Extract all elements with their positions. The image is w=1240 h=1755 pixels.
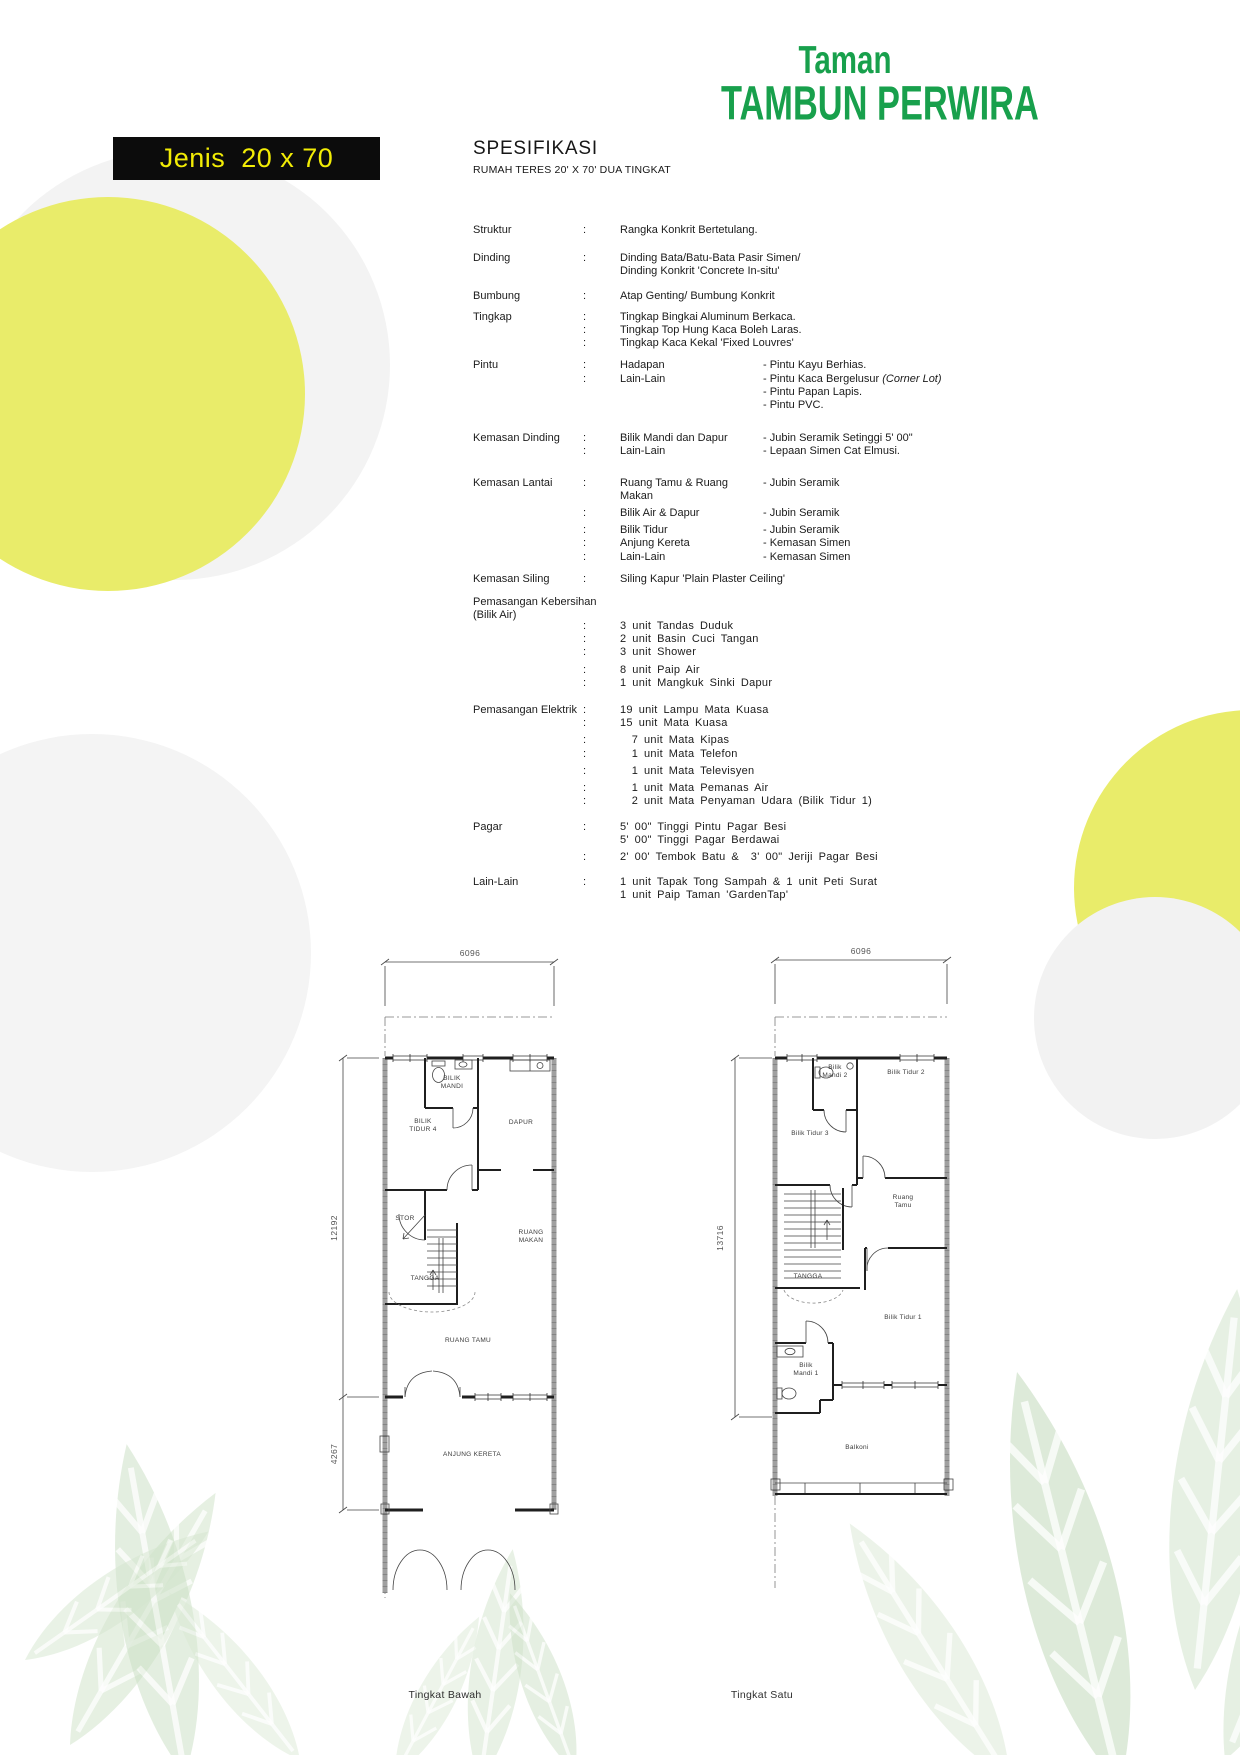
dim-width: 6096 [460,948,481,958]
spec-section-lines: :Dinding Bata/Batu-Bata Pasir Simen/ Din… [583,252,1113,278]
spec-colon: : [583,524,620,537]
spec-line: - Pintu Papan Lapis. [583,386,1113,399]
spec-section: Pintu :Hadapan- Pintu Kayu Berhias. :Lai… [473,359,1113,412]
spec-section-label: Pemasangan Kebersihan (Bilik Air) [473,596,583,690]
spec-value: 1 unit Mata Televisyen [620,765,754,778]
spec-colon: : [583,537,620,550]
spec-colon: : [583,551,620,564]
spec-value: 2 unit Basin Cuci Tangan [620,633,759,646]
spec-colon: : [583,677,620,690]
spec-colon: : [583,646,620,659]
spec-line: :Anjung Kereta- Kemasan Simen [583,537,1113,550]
spec-line: :1 unit Tapak Tong Sampah & 1 unit Peti … [583,876,1113,889]
room-ruang-makan: RUANG MAKAN [513,1229,549,1244]
brochure-page: Jenis 20 x 70 Taman TAMBUN PERWIRA SPESI… [0,0,1240,1755]
leaf-decoration [11,1284,1240,1755]
spec-colon: : [583,633,620,646]
spec-section: Kemasan Siling :Siling Kapur 'Plain Plas… [473,573,1113,586]
spec-section: Pemasangan Kebersihan (Bilik Air) :3 uni… [473,596,1113,690]
spec-colon: : [583,748,620,761]
spec-value: 8 unit Paip Air [620,664,700,677]
spec-label-line2: (Bilik Air) [473,609,583,622]
logo-line1: Taman [718,38,972,81]
spec-section: Kemasan Dinding :Bilik Mandi dan Dapur- … [473,432,1113,458]
room-ruang-tamu: Ruang Tamu [888,1194,918,1209]
spec-label-line1: Pemasangan Elektrik [473,704,583,717]
room-bilik-mandi: BILIK MANDI [437,1075,467,1090]
spec-line: :Rangka Konkrit Bertetulang. [583,224,1113,237]
spec-colon: : [583,765,620,778]
house-type-label: Jenis 20 x 70 [160,143,334,174]
room-bilik-mandi-1: Bilik Mandi 1 [793,1362,819,1377]
spec-colon [583,834,620,847]
spec-value: Lain-Lain [620,551,763,564]
spec-line: : 1 unit Mata Pemanas Air [583,782,1113,795]
room-balkoni: Balkoni [837,1444,877,1452]
spec-line: :Bilik Air & Dapur- Jubin Seramik [583,507,1113,520]
floor-plan-first: 6096 13716 [660,938,980,1720]
spec-value: 1 unit Mata Pemanas Air [620,782,768,795]
spec-section-label: Dinding [473,252,583,278]
spec-value-detail: - Pintu Papan Lapis. [763,386,862,399]
spec-value: 7 unit Mata Kipas [620,734,729,747]
spec-colon: : [583,507,620,520]
spec-colon: : [583,821,620,834]
spec-value: Bilik Mandi dan Dapur [620,432,763,445]
spec-section-label: Kemasan Dinding [473,432,583,458]
spec-value: Anjung Kereta [620,537,763,550]
spec-value: 3 unit Shower [620,646,696,659]
spec-line: Dinding Konkrit 'Concrete In-situ' [583,265,1113,278]
spec-value-detail: - Kemasan Simen [763,537,850,550]
dim-width: 6096 [851,946,872,956]
spec-value: 15 unit Mata Kuasa [620,717,728,730]
spec-section: Pagar :5' 00" Tinggi Pintu Pagar Besi 5'… [473,821,1113,865]
spec-section-label: Kemasan Lantai [473,477,583,564]
spec-value: 1 unit Tapak Tong Sampah & 1 unit Peti S… [620,876,877,889]
spec-colon: : [583,704,620,717]
spec-section-lines: :19 unit Lampu Mata Kuasa :15 unit Mata … [583,704,1113,808]
spec-section-lines: :Tingkap Bingkai Aluminum Berkaca. :Ting… [583,311,1113,351]
dim-depth-porch: 4267 [329,1444,339,1465]
spec-section-lines: :Atap Genting/ Bumbung Konkrit [583,290,1113,303]
spec-colon: : [583,337,620,350]
house-type-badge: Jenis 20 x 70 [113,137,380,180]
dim-depth-main: 13716 [715,1225,725,1251]
spec-line: :Bilik Mandi dan Dapur- Jubin Seramik Se… [583,432,1113,445]
spec-value: 5' 00" Tinggi Pagar Berdawai [620,834,780,847]
spec-value: 2 unit Mata Penyaman Udara (Bilik Tidur … [620,795,872,808]
spec-colon: : [583,290,620,303]
spec-colon: : [583,324,620,337]
spec-line: :Ruang Tamu & Ruang Makan- Jubin Seramik [583,477,1113,503]
spec-value-detail: - Jubin Seramik Setinggi 5' 00" [763,432,913,445]
spec-colon [583,386,620,399]
spec-value: 1 unit Paip Taman 'GardenTap' [620,889,788,902]
spec-line: : 1 unit Mata Telefon [583,748,1113,761]
spec-value: 3 unit Tandas Duduk [620,620,733,633]
spec-section-label: Bumbung [473,290,583,303]
spec-colon: : [583,851,620,864]
spec-value: 1 unit Mangkuk Sinki Dapur [620,677,772,690]
spec-line: 1 unit Paip Taman 'GardenTap' [583,889,1113,902]
spec-colon [583,399,620,412]
spec-line: :2 unit Basin Cuci Tangan [583,633,1113,646]
spec-label-line1: Pemasangan Kebersihan [473,596,583,609]
room-ruang-tamu: RUANG TAMU [433,1337,503,1345]
spec-colon: : [583,664,620,677]
spec-colon: : [583,359,620,372]
spec-line: :1 unit Mangkuk Sinki Dapur [583,677,1113,690]
spec-section-label: Pagar [473,821,583,865]
spec-line: :Siling Kapur 'Plain Plaster Ceiling' [583,573,1113,586]
spec-label-line1: Kemasan Lantai [473,477,583,490]
spec-line: :Atap Genting/ Bumbung Konkrit [583,290,1113,303]
spec-label-line1: Pintu [473,359,583,372]
spec-line: : 7 unit Mata Kipas [583,734,1113,747]
spec-value [620,386,763,399]
spec-value: 19 unit Lampu Mata Kuasa [620,704,769,717]
spec-value-detail: - Pintu Kaca Bergelusur (Corner Lot) [763,373,942,386]
spec-label-line1: Struktur [473,224,583,237]
spec-subtitle: RUMAH TERES 20' X 70' DUA TINGKAT [473,164,671,176]
room-bilik-tidur-3: Bilik Tidur 3 [790,1130,830,1138]
spec-label-line1: Pagar [473,821,583,834]
spec-value-detail: - Jubin Seramik [763,507,839,520]
spec-value-detail: - Lepaan Simen Cat Elmusi. [763,445,900,458]
room-bilik-mandi-2: Bilik Mandi 2 [821,1064,849,1079]
room-tangga: TANGGA [788,1273,828,1281]
spec-colon: : [583,252,620,265]
spec-section: Dinding :Dinding Bata/Batu-Bata Pasir Si… [473,252,1113,278]
spec-title: SPESIFIKASI [473,138,671,160]
spec-label-line1: Kemasan Siling [473,573,583,586]
spec-line: 5' 00" Tinggi Pagar Berdawai [583,834,1113,847]
spec-colon: : [583,620,620,633]
spec-colon: : [583,224,620,237]
spec-section-lines: :1 unit Tapak Tong Sampah & 1 unit Peti … [583,876,1113,902]
spec-section-label: Tingkap [473,311,583,351]
room-dapur: DAPUR [501,1119,541,1127]
floor-plan-ground: 6096 12192 4267 [325,938,575,1720]
floor-plan-first-drawing: 6096 13716 [660,938,980,1720]
dim-depth-main: 12192 [329,1215,339,1241]
spec-value [620,399,763,412]
spec-line: :15 unit Mata Kuasa [583,717,1113,730]
spec-label-line1: Tingkap [473,311,583,324]
spec-colon: : [583,573,620,586]
spec-colon: : [583,373,620,386]
spec-colon: : [583,782,620,795]
spec-value: Dinding Bata/Batu-Bata Pasir Simen/ [620,252,800,265]
spec-section: Bumbung :Atap Genting/ Bumbung Konkrit [473,290,1113,303]
spec-value: Tingkap Top Hung Kaca Boleh Laras. [620,324,802,337]
logo-line2: TAMBUN PERWIRA [721,79,969,128]
spec-line: :Tingkap Top Hung Kaca Boleh Laras. [583,324,1113,337]
plan-caption-first: Tingkat Satu [731,1689,793,1701]
spec-line: :Bilik Tidur- Jubin Seramik [583,524,1113,537]
spec-section: Struktur :Rangka Konkrit Bertetulang. [473,224,1113,237]
spec-value: Rangka Konkrit Bertetulang. [620,224,758,237]
spec-value: Tingkap Kaca Kekal 'Fixed Louvres' [620,337,794,350]
spec-value: Atap Genting/ Bumbung Konkrit [620,290,775,303]
spec-heading: SPESIFIKASI RUMAH TERES 20' X 70' DUA TI… [473,138,671,176]
spec-value: Lain-Lain [620,373,763,386]
spec-line: :Hadapan- Pintu Kayu Berhias. [583,359,1113,372]
spec-colon: : [583,717,620,730]
spec-value: 2' 00' Tembok Batu & 3' 00" Jeriji Pagar… [620,851,878,864]
spec-section-lines: :Hadapan- Pintu Kayu Berhias. :Lain-Lain… [583,359,1113,412]
spec-label-line1: Kemasan Dinding [473,432,583,445]
spec-value: Dinding Konkrit 'Concrete In-situ' [620,265,780,278]
room-bilik-tidur-4: BILIK TIDUR 4 [406,1118,440,1133]
room-bilik-tidur-1: Bilik Tidur 1 [883,1314,923,1322]
spec-table: Struktur :Rangka Konkrit Bertetulang. Di… [473,218,1113,903]
spec-value-detail: - Kemasan Simen [763,551,850,564]
spec-label-line1: Dinding [473,252,583,265]
spec-line: - Pintu PVC. [583,399,1113,412]
spec-line: :Lain-Lain- Kemasan Simen [583,551,1113,564]
room-anjung-kereta: ANJUNG KERETA [432,1451,512,1459]
spec-section: Tingkap :Tingkap Bingkai Aluminum Berkac… [473,311,1113,351]
spec-line: :Lain-Lain- Pintu Kaca Bergelusur (Corne… [583,373,1113,386]
spec-value: 5' 00" Tinggi Pintu Pagar Besi [620,821,786,834]
spec-colon: : [583,477,620,503]
spec-line: :8 unit Paip Air [583,664,1113,677]
spec-section-lines: :Siling Kapur 'Plain Plaster Ceiling' [583,573,1113,586]
spec-section: Kemasan Lantai :Ruang Tamu & Ruang Makan… [473,477,1113,564]
spec-section-label: Pemasangan Elektrik [473,704,583,808]
spec-value-detail: - Pintu Kayu Berhias. [763,359,866,372]
spec-value: Bilik Tidur [620,524,763,537]
spec-line: :5' 00" Tinggi Pintu Pagar Besi [583,821,1113,834]
spec-colon: : [583,311,620,324]
spec-value-detail: - Pintu PVC. [763,399,824,412]
spec-line: : 1 unit Mata Televisyen [583,765,1113,778]
spec-colon [583,889,620,902]
spec-line: : 2 unit Mata Penyaman Udara (Bilik Tidu… [583,795,1113,808]
spec-line: :19 unit Lampu Mata Kuasa [583,704,1113,717]
spec-value: Ruang Tamu & Ruang Makan [620,477,763,503]
spec-line: :Tingkap Kaca Kekal 'Fixed Louvres' [583,337,1113,350]
spec-section-label: Lain-Lain [473,876,583,902]
spec-section-lines: :3 unit Tandas Duduk :2 unit Basin Cuci … [583,620,1113,690]
room-bilik-tidur-2: Bilik Tidur 2 [886,1069,926,1077]
spec-section-lines: :Bilik Mandi dan Dapur- Jubin Seramik Se… [583,432,1113,458]
floor-plan-ground-drawing: 6096 12192 4267 [325,938,575,1720]
room-stor: STOR [390,1215,420,1223]
spec-section: Pemasangan Elektrik :19 unit Lampu Mata … [473,704,1113,808]
spec-section-lines: :5' 00" Tinggi Pintu Pagar Besi 5' 00" T… [583,821,1113,865]
spec-section-label: Pintu [473,359,583,412]
spec-value: Siling Kapur 'Plain Plaster Ceiling' [620,573,785,586]
spec-section-lines: :Ruang Tamu & Ruang Makan- Jubin Seramik… [583,477,1113,564]
spec-value-detail: - Jubin Seramik [763,477,839,503]
project-logo: Taman TAMBUN PERWIRA [690,40,1000,126]
spec-label-line1: Bumbung [473,290,583,303]
spec-colon: : [583,876,620,889]
plan-caption-ground: Tingkat Bawah [409,1689,482,1701]
spec-value-detail: - Jubin Seramik [763,524,839,537]
spec-line: :Dinding Bata/Batu-Bata Pasir Simen/ [583,252,1113,265]
spec-line: :3 unit Tandas Duduk [583,620,1113,633]
spec-line: :Lain-Lain- Lepaan Simen Cat Elmusi. [583,445,1113,458]
spec-colon: : [583,734,620,747]
spec-line: :3 unit Shower [583,646,1113,659]
spec-line: :Tingkap Bingkai Aluminum Berkaca. [583,311,1113,324]
spec-value: 1 unit Mata Telefon [620,748,738,761]
spec-value: Hadapan [620,359,763,372]
spec-value: Lain-Lain [620,445,763,458]
spec-section: Lain-Lain :1 unit Tapak Tong Sampah & 1 … [473,876,1113,902]
room-tangga: TANGGA [404,1275,446,1283]
spec-value: Bilik Air & Dapur [620,507,763,520]
spec-section-label: Struktur [473,224,583,237]
spec-colon: : [583,795,620,808]
spec-colon: : [583,432,620,445]
spec-label-line1: Lain-Lain [473,876,583,889]
spec-section-lines: :Rangka Konkrit Bertetulang. [583,224,1113,237]
spec-colon: : [583,445,620,458]
spec-line: :2' 00' Tembok Batu & 3' 00" Jeriji Paga… [583,851,1113,864]
spec-section-label: Kemasan Siling [473,573,583,586]
spec-value: Tingkap Bingkai Aluminum Berkaca. [620,311,796,324]
spec-colon [583,265,620,278]
